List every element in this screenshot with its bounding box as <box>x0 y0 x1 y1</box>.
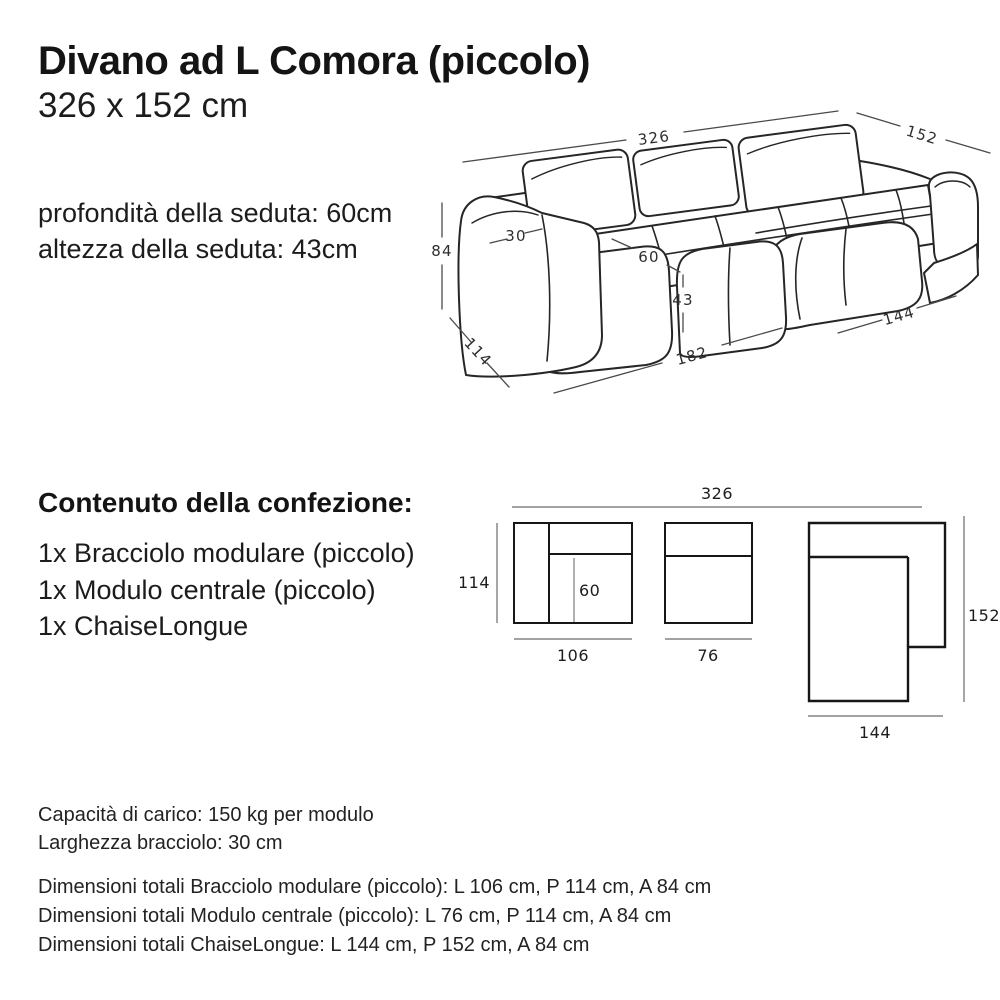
total-dimensions-arm-module: Dimensioni totali Bracciolo modulare (pi… <box>38 873 711 902</box>
dim-seat-depth-label: 60 <box>638 248 660 266</box>
package-item: 1x Modulo centrale (piccolo) <box>38 572 415 609</box>
layout-total-width-label: 326 <box>701 484 733 503</box>
layout-dimension-lines <box>497 507 964 716</box>
layout-chaise-width-label: 144 <box>859 723 891 742</box>
layout-arm-depth-label: 114 <box>460 573 490 592</box>
dim-arm-width-label: 30 <box>505 227 527 245</box>
layout-center-width-label: 76 <box>697 646 718 665</box>
load-specs-block: Capacità di carico: 150 kg per modulo La… <box>38 801 374 857</box>
page-title: Divano ad L Comora (piccolo) <box>38 38 590 84</box>
package-contents-list: 1x Bracciolo modulare (piccolo) 1x Modul… <box>38 535 415 645</box>
back-rail <box>860 161 930 179</box>
load-capacity-text: Capacità di carico: 150 kg per modulo <box>38 801 374 829</box>
layout-seat-depth-label: 60 <box>579 581 600 600</box>
total-dimensions-center-module: Dimensioni totali Modulo centrale (picco… <box>38 902 711 931</box>
layout-arm-width-label: 106 <box>557 646 589 665</box>
layout-modules <box>514 523 945 701</box>
overall-size-subtitle: 326 x 152 cm <box>38 86 248 126</box>
seat-height-text: altezza della seduta: 43cm <box>38 231 392 267</box>
spec-sheet-page: { "header": { "title": "Divano ad L Como… <box>0 0 1000 1000</box>
package-item: 1x Bracciolo modulare (piccolo) <box>38 535 415 572</box>
dim-total-width-label: 326 <box>637 127 671 149</box>
module-layout-diagram: 326 114 60 106 76 152 144 <box>460 470 1000 760</box>
seat-depth-text: profondità della seduta: 60cm <box>38 195 392 231</box>
chaise-outline <box>809 523 945 701</box>
armrest-width-text: Larghezza bracciolo: 30 cm <box>38 829 374 857</box>
total-dimensions-block: Dimensioni totali Bracciolo modulare (pi… <box>38 873 711 960</box>
seat-specs-block: profondità della seduta: 60cm altezza de… <box>38 195 392 267</box>
dim-total-depth-label: 152 <box>904 122 940 149</box>
module-arm-outline <box>514 523 632 623</box>
dim-seat-height-label: 43 <box>672 291 694 309</box>
layout-chaise-depth-label: 152 <box>968 606 1000 625</box>
package-item: 1x ChaiseLongue <box>38 608 415 645</box>
package-contents-heading: Contenuto della confezione: <box>38 487 413 519</box>
module-center-outline <box>665 523 752 623</box>
dim-height-label: 84 <box>431 242 453 260</box>
sofa-line-art <box>459 124 978 377</box>
total-dimensions-chaise: Dimensioni totali ChaiseLongue: L 144 cm… <box>38 931 711 960</box>
sofa-isometric-diagram: 326 152 84 30 60 43 114 182 144 <box>430 95 1000 405</box>
